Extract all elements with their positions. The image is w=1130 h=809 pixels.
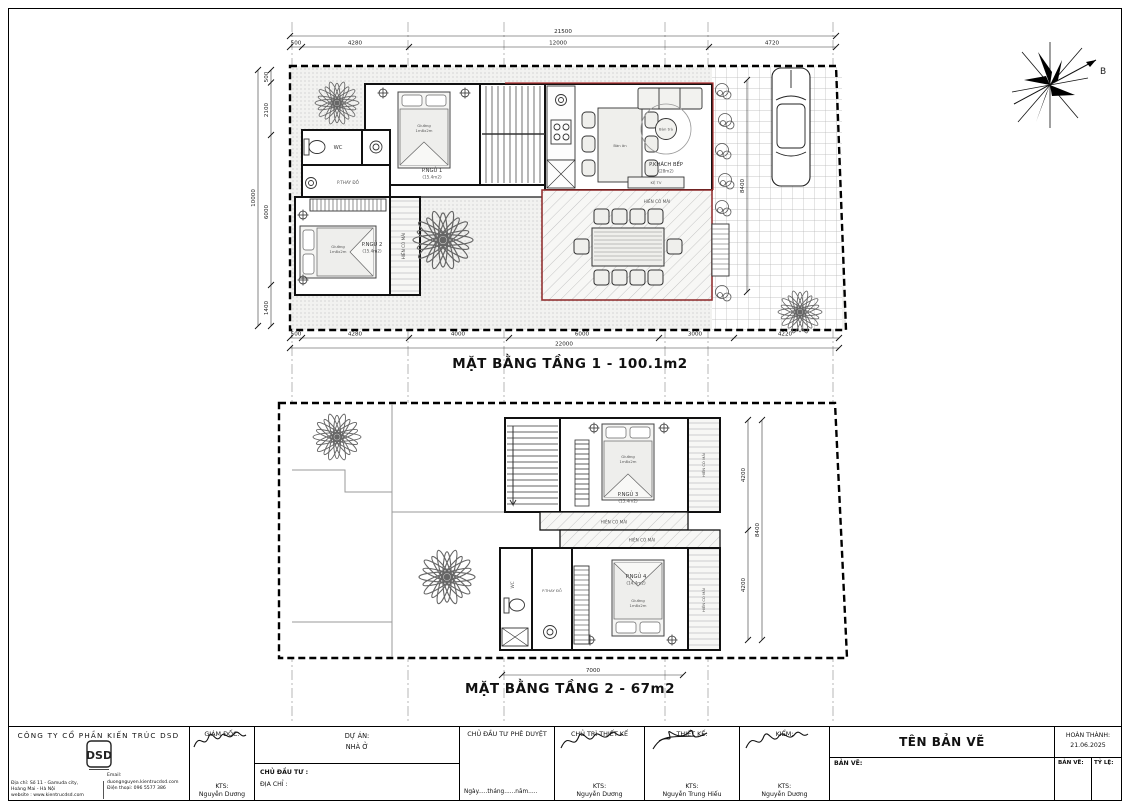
- kitchen-counter: [547, 86, 575, 188]
- wardrobe-icon: [574, 566, 589, 644]
- company-name: CÔNG TY CỔ PHẦN KIẾN TRÚC DSD: [8, 727, 189, 740]
- tv-shelf-label: KỆ TV: [650, 180, 661, 185]
- dim-label: 500: [264, 71, 270, 82]
- porch-label: HIÊN CÓ MÁI: [701, 588, 706, 612]
- bedroom1-area: (15.4m2): [422, 175, 442, 180]
- dim-label: 7000: [586, 668, 601, 674]
- sheet-label: BẢN VẼ:: [1058, 760, 1084, 766]
- bed-label: 1m8x2m: [330, 249, 347, 254]
- drawing-label: BẢN VẼ:: [834, 760, 862, 767]
- bedroom3-label: P.NGỦ 3: [618, 490, 639, 498]
- terrace-label: HIÊN CÓ MÁI: [644, 199, 671, 204]
- dim-label: 4720: [765, 41, 780, 47]
- dim-label: 1400: [264, 300, 270, 315]
- bed-label: 1m8x2m: [630, 603, 647, 608]
- tb-drawing-title-cell: TÊN BẢN VẼ BẢN VẼ:: [830, 727, 1055, 801]
- compass-north-label: B: [1100, 67, 1106, 77]
- dim-label: 4000: [451, 332, 466, 338]
- tb-director-cell: GIÁM ĐỐC: KTS: Nguyễn Dương: [190, 727, 255, 801]
- tb-completed-cell: HOÀN THÀNH: 21.06.2025 BẢN VẼ: TỶ LỆ:: [1055, 727, 1121, 801]
- dim-label: 8400: [740, 178, 746, 193]
- dim-label: 21500: [554, 29, 572, 35]
- dim-label: 12000: [549, 41, 567, 47]
- tb-checker-cell: KIỂM: KTS: Nguyễn Dương: [740, 727, 830, 801]
- porch-label: HIÊN CÓ MÁI: [629, 538, 656, 543]
- completed-label: HOÀN THÀNH:: [1055, 731, 1121, 741]
- bedroom2-label: P.NGỦ 2: [362, 240, 383, 248]
- dim-label: 10000: [251, 189, 257, 207]
- company-logo: DSD: [84, 740, 114, 772]
- dressing-label: P.THAY ĐỒ: [337, 180, 360, 185]
- living-label: P.KHÁCH BẾP: [649, 160, 683, 168]
- svg-text:DSD: DSD: [86, 749, 112, 762]
- checker-name: KTS: Nguyễn Dương: [761, 783, 807, 801]
- signature-icon: [190, 727, 248, 751]
- company-address: Địa chỉ: Số 11 - Gamuda city, Hoàng Mai …: [11, 781, 104, 799]
- dim-label: 8400: [755, 522, 761, 537]
- lead-name: KTS: Nguyễn Dương: [576, 783, 622, 801]
- company-phone: Điện thoại: 096 5577 386: [107, 786, 189, 792]
- bedroom3-area: (15.4m2): [618, 499, 638, 504]
- sofa-icon: [638, 88, 702, 109]
- company-contact: Email: duongnguyen.kientrucdsd.com Điện …: [107, 773, 189, 792]
- scale-label: TỶ LỆ:: [1094, 760, 1113, 766]
- dim-label: 4200: [741, 577, 747, 592]
- drawing-sheet: 21500 500 4280 12000 4720 500 4280 4000 …: [0, 0, 1130, 809]
- dressing-label: P.THAY ĐỒ: [542, 588, 562, 593]
- tb-lead-cell: CHỦ TRÌ THIẾT KẾ KTS: Nguyễn Dương: [555, 727, 645, 801]
- director-name: KTS: Nguyễn Dương: [199, 783, 245, 801]
- approval-date-line: Ngày.....tháng......năm.....: [464, 789, 537, 795]
- car-icon: [772, 68, 810, 186]
- dim-label: 4280: [348, 41, 363, 47]
- dim-label: 4280: [348, 332, 363, 338]
- porch-label: HIÊN CÓ MÁI: [701, 453, 706, 477]
- dim-label: 22000: [555, 342, 573, 348]
- dim-label: 500: [291, 41, 302, 47]
- plan1-title: MẶT BẰNG TẦNG 1 - 100.1m2: [370, 356, 770, 372]
- project-label: DỰ ÁN:: [255, 731, 459, 742]
- title-block: CÔNG TY CỔ PHẦN KIẾN TRÚC DSD DSD Địa ch…: [8, 726, 1122, 801]
- bed-label: 1m8x2m: [416, 128, 433, 133]
- company-website: website : www.kientrucdsd.com: [11, 793, 103, 799]
- signature-icon: [555, 727, 625, 751]
- tea-table-label: Bàn trà: [659, 127, 673, 132]
- investor-label: CHỦ ĐẦU TƯ :: [260, 767, 308, 779]
- dim-label: 4220: [778, 332, 793, 338]
- approval-label: CHỦ ĐẦU TƯ PHÊ DUYỆT: [460, 727, 554, 738]
- signature-icon: [645, 727, 715, 751]
- bedroom4-label: P.NGỦ 4: [626, 572, 647, 580]
- tb-approval-cell: CHỦ ĐẦU TƯ PHÊ DUYỆT Ngày.....tháng.....…: [460, 727, 555, 801]
- wardrobe-icon: [310, 199, 386, 211]
- site-address-label: ĐỊA CHỈ :: [260, 779, 308, 791]
- dining-table-label: Bàn ăn: [613, 143, 627, 148]
- bedroom4-area: (14.4m2): [626, 581, 646, 586]
- porch-label: HIÊN CÓ MÁI: [401, 233, 406, 260]
- bed-label: 1m8x2m: [620, 459, 637, 464]
- dim-label: 2100: [264, 102, 270, 117]
- dim-label: 6000: [575, 332, 590, 338]
- dim-label: 6000: [264, 204, 270, 219]
- drawing-title: TÊN BẢN VẼ: [830, 727, 1054, 749]
- company-email: Email: duongnguyen.kientrucdsd.com: [107, 773, 189, 786]
- dim-label: 3000: [688, 332, 703, 338]
- porch-label: HIÊN CÓ MÁI: [601, 520, 628, 525]
- designer-name: KTS: Nguyễn Trung Hiếu: [662, 783, 721, 801]
- plan2-title: MẶT BẰNG TẦNG 2 - 67m2: [370, 681, 770, 697]
- tb-designer-cell: THIẾT KẾ: KTS: Nguyễn Trung Hiếu: [645, 727, 740, 801]
- tb-company-cell: CÔNG TY CỔ PHẦN KIẾN TRÚC DSD DSD Địa ch…: [8, 727, 190, 801]
- bedroom2-area: (15.4m2): [362, 249, 382, 254]
- tb-project-cell: DỰ ÁN: NHÀ Ở CHỦ ĐẦU TƯ : ĐỊA CHỈ :: [255, 727, 460, 801]
- completed-date: 21.06.2025: [1055, 741, 1121, 751]
- dim-label: 4200: [741, 467, 747, 482]
- bench-icon: [712, 224, 729, 276]
- wc-label: WC: [510, 581, 515, 588]
- dim-label: 500: [291, 332, 302, 338]
- bedroom1-label: P.NGỦ 1: [422, 166, 443, 174]
- wc-label: WC: [334, 145, 343, 151]
- signature-icon: [740, 727, 810, 751]
- project-name: NHÀ Ở: [255, 742, 459, 753]
- compass-icon: B: [1012, 42, 1106, 128]
- living-area: (28m2): [658, 169, 674, 174]
